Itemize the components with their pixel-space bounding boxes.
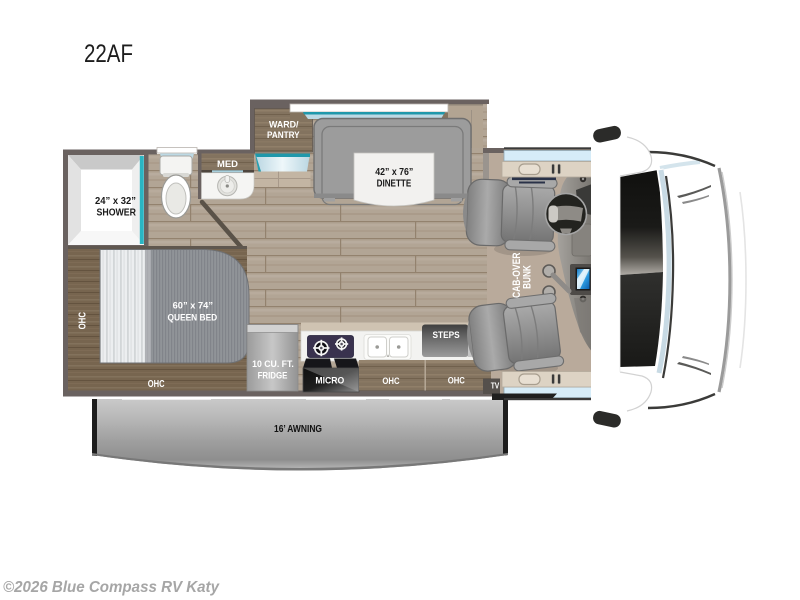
- svg-text:24” x 32”: 24” x 32”: [95, 195, 136, 207]
- svg-text:16’ AWNING: 16’ AWNING: [274, 423, 322, 435]
- svg-text:60” x 74”: 60” x 74”: [173, 300, 213, 310]
- svg-text:22AF: 22AF: [84, 40, 133, 68]
- svg-text:FRIDGE: FRIDGE: [258, 370, 288, 380]
- svg-text:OHC: OHC: [448, 376, 465, 387]
- svg-text:TV: TV: [491, 381, 500, 391]
- svg-text:42” x 76”: 42” x 76”: [375, 167, 413, 178]
- svg-text:WARD/: WARD/: [269, 119, 299, 130]
- svg-text:10 CU. FT.: 10 CU. FT.: [252, 359, 294, 369]
- svg-text:OHC: OHC: [382, 376, 399, 387]
- svg-text:OHC: OHC: [77, 312, 88, 329]
- svg-text:MED: MED: [217, 159, 238, 169]
- svg-text:BUNK: BUNK: [522, 265, 534, 289]
- svg-text:DINETTE: DINETTE: [377, 178, 412, 189]
- svg-text:STEPS: STEPS: [433, 329, 460, 340]
- svg-text:SHOWER: SHOWER: [97, 207, 137, 219]
- svg-text:©2026 Blue Compass RV Katy: ©2026 Blue Compass RV Katy: [3, 579, 220, 596]
- svg-text:PANTRY: PANTRY: [267, 129, 300, 140]
- svg-text:OHC: OHC: [148, 378, 165, 390]
- svg-text:QUEEN BED: QUEEN BED: [168, 312, 218, 322]
- svg-text:MICRO: MICRO: [315, 375, 344, 385]
